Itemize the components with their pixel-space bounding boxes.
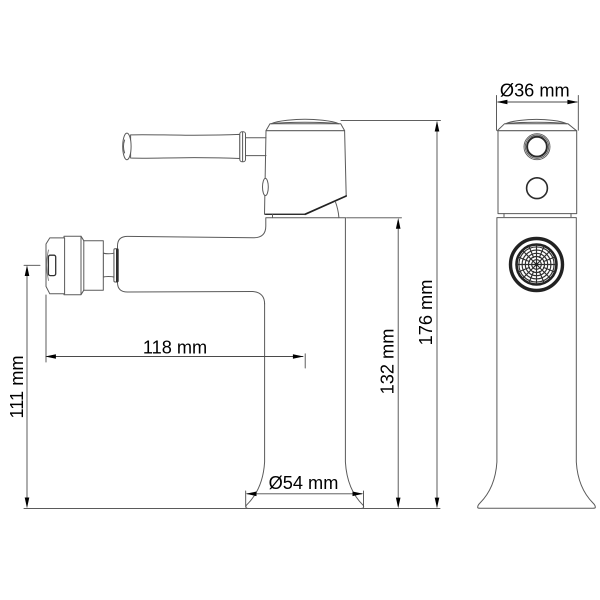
svg-text:132 mm: 132 mm [378,329,398,395]
svg-text:Ø54 mm: Ø54 mm [269,473,339,493]
svg-text:111 mm: 111 mm [7,356,27,419]
svg-text:118 mm: 118 mm [143,338,207,358]
svg-text:Ø36 mm: Ø36 mm [500,80,570,100]
svg-text:176 mm: 176 mm [416,280,436,346]
